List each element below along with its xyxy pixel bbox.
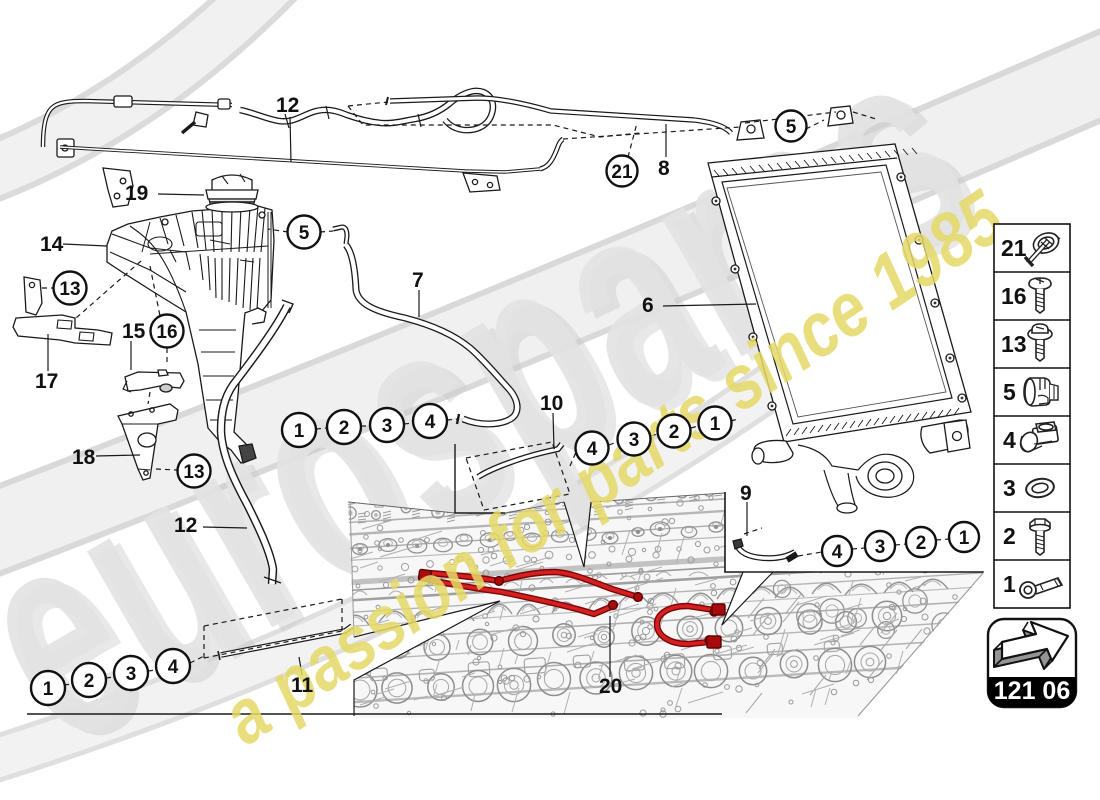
- svg-text:1: 1: [710, 414, 721, 435]
- svg-text:4: 4: [587, 439, 598, 460]
- svg-text:4: 4: [832, 542, 843, 563]
- svg-text:13: 13: [1001, 331, 1027, 357]
- svg-text:2: 2: [916, 533, 927, 554]
- svg-text:10: 10: [540, 392, 563, 415]
- svg-text:3: 3: [629, 430, 640, 451]
- svg-text:3: 3: [875, 537, 886, 558]
- svg-text:8: 8: [658, 157, 670, 180]
- svg-text:3: 3: [1003, 475, 1016, 501]
- svg-text:121 06: 121 06: [994, 677, 1070, 705]
- svg-text:2: 2: [1003, 523, 1016, 549]
- svg-text:13: 13: [183, 462, 204, 483]
- svg-text:1: 1: [959, 528, 970, 549]
- svg-text:6: 6: [642, 294, 654, 317]
- svg-text:5: 5: [299, 223, 310, 244]
- svg-text:4: 4: [1003, 427, 1016, 453]
- svg-text:5: 5: [1003, 379, 1016, 405]
- svg-text:2: 2: [84, 671, 95, 692]
- svg-text:11: 11: [291, 674, 314, 697]
- svg-text:15: 15: [122, 320, 146, 343]
- svg-text:16: 16: [156, 322, 177, 343]
- svg-text:2: 2: [339, 418, 350, 439]
- svg-text:12: 12: [276, 94, 299, 117]
- svg-text:2: 2: [669, 422, 680, 443]
- svg-text:7: 7: [412, 269, 424, 292]
- svg-text:14: 14: [40, 233, 64, 256]
- svg-text:18: 18: [72, 446, 96, 469]
- svg-text:4: 4: [425, 412, 436, 433]
- svg-text:1: 1: [294, 421, 305, 442]
- svg-text:1: 1: [43, 679, 54, 700]
- svg-text:20: 20: [599, 675, 622, 698]
- svg-text:17: 17: [35, 370, 58, 393]
- svg-text:19: 19: [125, 182, 148, 205]
- svg-text:12: 12: [174, 514, 197, 537]
- svg-text:9: 9: [740, 482, 752, 505]
- svg-text:16: 16: [1001, 283, 1027, 309]
- svg-text:21: 21: [611, 162, 633, 183]
- svg-text:1: 1: [1003, 571, 1016, 597]
- svg-text:5: 5: [786, 117, 797, 138]
- svg-text:21: 21: [1001, 235, 1027, 261]
- svg-text:13: 13: [59, 279, 80, 300]
- svg-text:3: 3: [382, 416, 393, 437]
- svg-text:4: 4: [168, 657, 179, 678]
- svg-text:3: 3: [126, 664, 137, 685]
